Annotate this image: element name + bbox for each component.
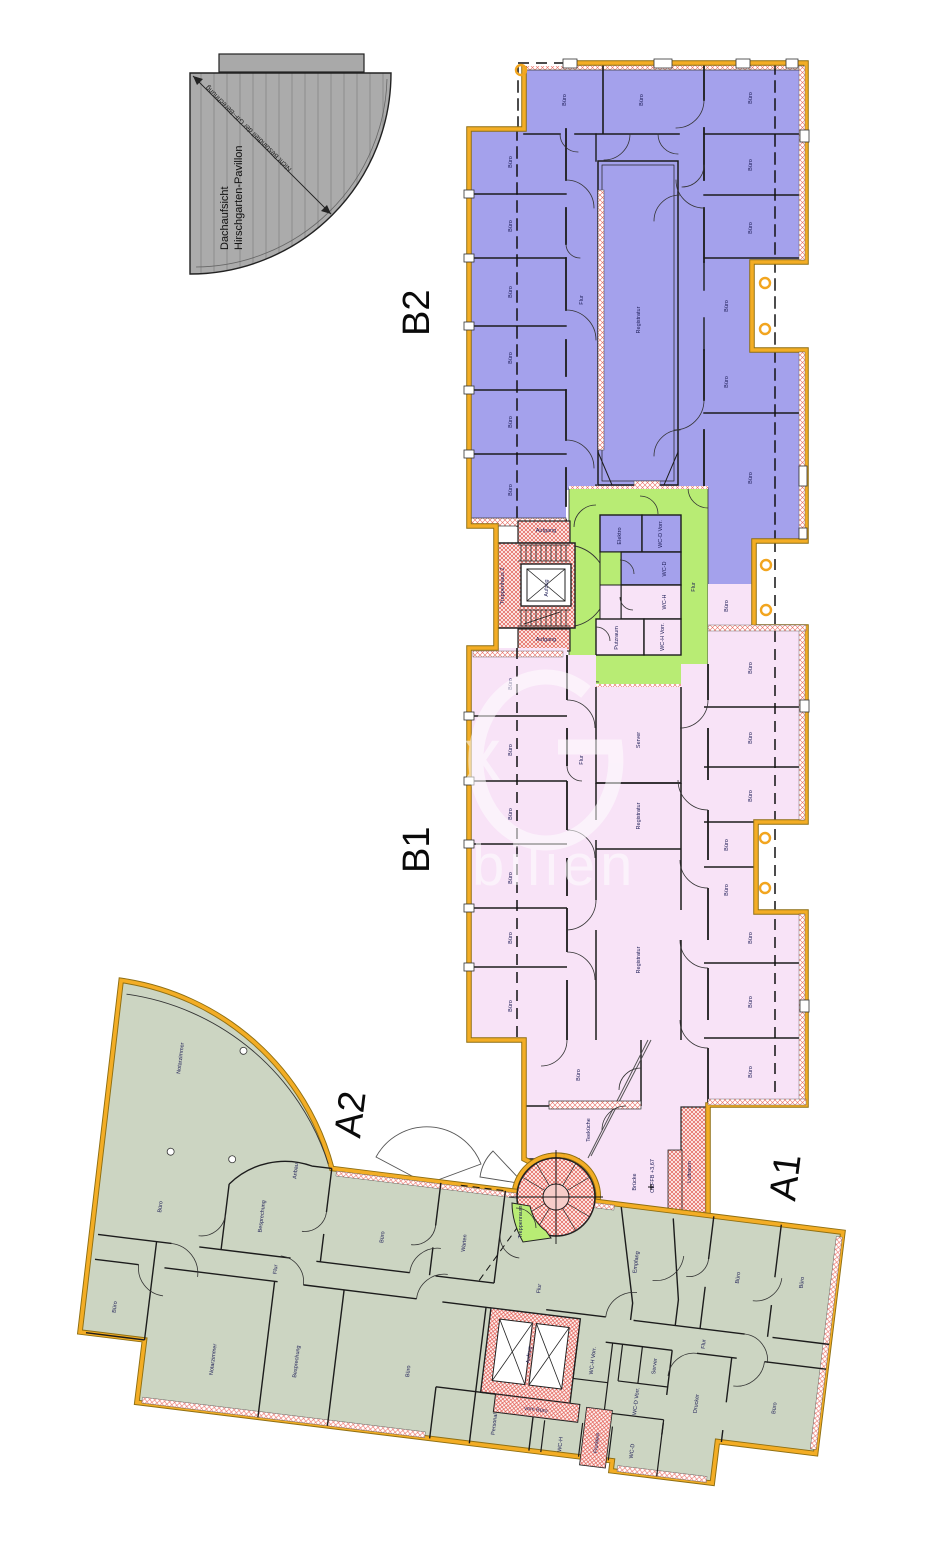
svg-text:Server: Server [636, 732, 642, 748]
svg-text:Büro: Büro [724, 884, 730, 896]
svg-text:Büro: Büro [724, 300, 730, 312]
svg-text:Dachaufsicht: Dachaufsicht [219, 186, 231, 250]
svg-text:Büro: Büro [508, 484, 514, 496]
svg-text:Flur: Flur [579, 755, 585, 765]
svg-text:Büro: Büro [562, 94, 568, 106]
svg-text:Hirschgarten-Pavillon: Hirschgarten-Pavillon [233, 145, 245, 250]
svg-text:Aufgang: Aufgang [536, 528, 557, 534]
svg-text:Büro: Büro [508, 220, 514, 232]
svg-text:Büro: Büro [748, 790, 754, 802]
svg-text:Büro: Büro [748, 1066, 754, 1078]
svg-text:Büro: Büro [724, 600, 730, 612]
svg-text:Büro: Büro [748, 92, 754, 104]
svg-text:Flur: Flur [579, 295, 585, 305]
svg-text:B1: B1 [396, 827, 438, 873]
svg-text:A2: A2 [327, 1089, 374, 1140]
svg-text:Registratur: Registratur [636, 946, 642, 973]
svg-text:bilien: bilien [472, 833, 637, 898]
svg-text:B2: B2 [396, 290, 438, 336]
svg-text:Büro: Büro [748, 222, 754, 234]
svg-text:Büro: Büro [508, 808, 514, 820]
svg-text:A1: A1 [762, 1152, 809, 1203]
svg-text:Aufgang: Aufgang [536, 637, 557, 643]
svg-text:Büro: Büro [508, 1000, 514, 1012]
svg-text:Büro: Büro [508, 156, 514, 168]
svg-text:Büro: Büro [748, 996, 754, 1008]
svg-text:Flur: Flur [701, 1339, 708, 1349]
svg-text:Aufzug: Aufzug [544, 579, 550, 596]
svg-text:Büro: Büro [724, 839, 730, 851]
svg-text:Büro: Büro [724, 376, 730, 388]
svg-text:Teeküche: Teeküche [586, 1118, 592, 1142]
svg-text:Büro: Büro [508, 352, 514, 364]
svg-text:Büro: Büro [748, 662, 754, 674]
svg-text:Registratur: Registratur [636, 802, 642, 829]
svg-text:Büro: Büro [576, 1069, 582, 1081]
svg-text:Büro: Büro [508, 416, 514, 428]
svg-text:Büro: Büro [508, 932, 514, 944]
svg-text:Büro: Büro [748, 159, 754, 171]
svg-text:Luftraum: Luftraum [687, 1161, 693, 1183]
svg-text:Flur: Flur [536, 1283, 543, 1293]
svg-text:Flur: Flur [273, 1264, 280, 1274]
svg-text:WC-H: WC-H [662, 594, 668, 609]
svg-text:Brücke: Brücke [632, 1173, 638, 1190]
svg-text:WC-D: WC-D [662, 561, 668, 576]
svg-text:Registratur: Registratur [636, 306, 642, 333]
svg-text:Büro: Büro [508, 286, 514, 298]
svg-text:Treppenraum: Treppenraum [518, 1205, 524, 1238]
svg-text:Büro: Büro [748, 472, 754, 484]
svg-text:Elektro: Elektro [617, 527, 623, 544]
svg-text:Büro: Büro [748, 932, 754, 944]
svg-text:Büro: Büro [639, 94, 645, 106]
svg-text:Putzraum: Putzraum [614, 626, 620, 650]
svg-text:Flur: Flur [691, 582, 697, 592]
svg-text:WC-D Vorr.: WC-D Vorr. [658, 520, 664, 548]
svg-text:Büro: Büro [508, 744, 514, 756]
svg-text:Büro: Büro [748, 732, 754, 744]
svg-text:WC-H Vorr.: WC-H Vorr. [660, 623, 666, 651]
svg-text:Treppenhaus 2: Treppenhaus 2 [500, 568, 506, 605]
svg-text:x: x [464, 713, 501, 796]
